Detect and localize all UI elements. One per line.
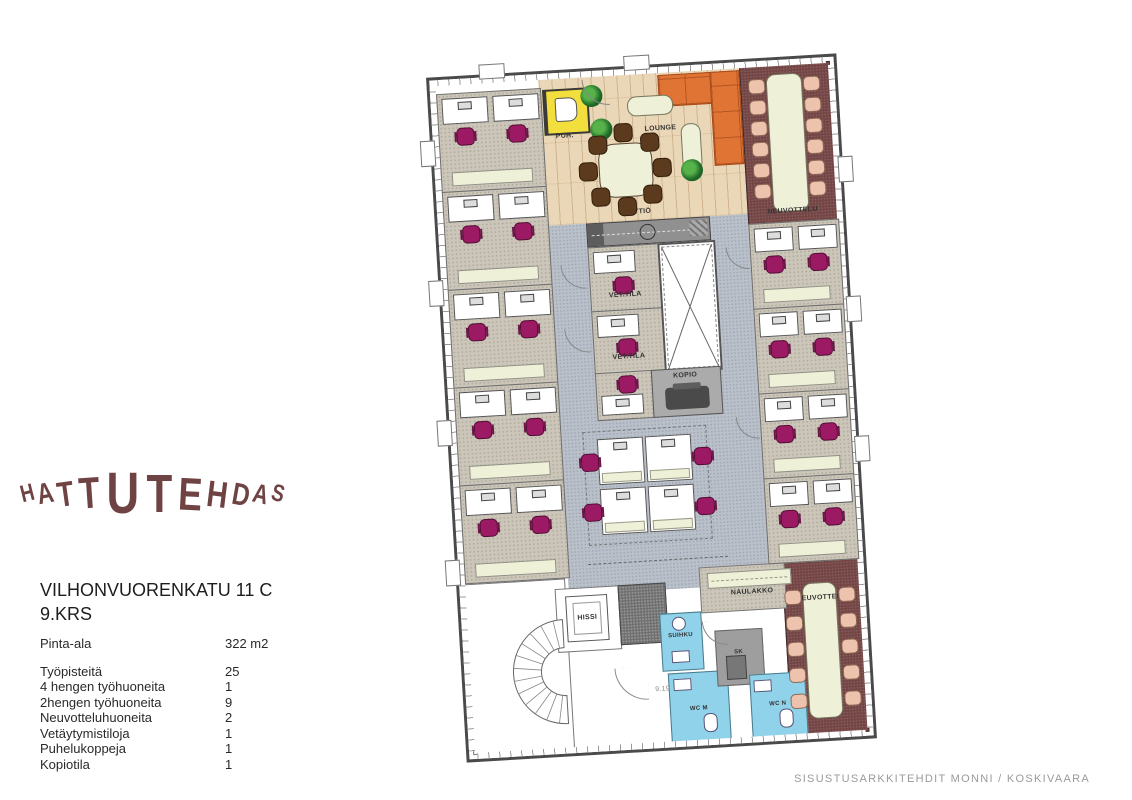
meeting-chair — [838, 586, 856, 602]
logo-letter: T — [55, 476, 76, 513]
address-block: VILHONVUORENKATU 11 C 9.KRS — [40, 578, 272, 626]
meeting-chair — [841, 638, 859, 654]
sideboard — [452, 168, 534, 187]
logo-letter: H — [18, 481, 36, 507]
meeting-chair — [786, 615, 804, 631]
stats-table: Pinta-ala 322 m2 Työpisteitä25 4 hengen … — [40, 636, 320, 772]
office-chair — [479, 518, 498, 537]
lounge-chair — [640, 132, 660, 152]
stat-value: 1 — [225, 679, 232, 695]
floor-line: 9.KRS — [40, 602, 272, 626]
desk — [813, 478, 853, 504]
stat-row: 2hengen työhuoneita9 — [40, 695, 320, 711]
office-chair — [581, 453, 600, 472]
sideboard — [773, 455, 841, 473]
logo-letter: T — [77, 471, 100, 516]
facade-pilaster — [436, 420, 453, 447]
office-room — [448, 284, 559, 389]
desk — [600, 486, 649, 535]
office-chair — [819, 422, 838, 441]
desk-cluster — [597, 434, 697, 535]
desk — [510, 387, 557, 416]
stat-value: 1 — [225, 741, 232, 757]
logo-letter: D — [230, 477, 252, 510]
sideboard — [463, 363, 545, 382]
logo-letter: E — [177, 470, 203, 517]
office-chair — [525, 417, 544, 436]
logo-letter: A — [35, 478, 56, 509]
desk — [515, 484, 562, 513]
shower-sink — [671, 650, 690, 663]
meeting-chair — [750, 121, 768, 137]
stat-label: Pinta-ala — [40, 636, 225, 652]
meeting-chair — [748, 79, 766, 95]
logo-letter: T — [146, 467, 171, 521]
spiral-staircase — [467, 613, 574, 735]
desk — [447, 194, 494, 223]
meeting-chair — [844, 690, 862, 706]
meeting-chair — [808, 159, 826, 175]
lounge-sofa — [709, 70, 745, 166]
stat-value: 1 — [225, 726, 232, 742]
facade-pilaster — [623, 55, 650, 72]
stat-label: Kopiotila — [40, 757, 225, 773]
office-chair — [514, 222, 533, 241]
office-room — [748, 219, 844, 310]
sink — [639, 223, 656, 240]
address-line1: VILHONVUORENKATU 11 C — [40, 578, 272, 602]
copier — [665, 386, 710, 411]
office-room — [753, 303, 849, 394]
office-chair — [780, 509, 799, 528]
hattutehdas-logo: HATTUTEHDAS — [62, 450, 242, 538]
lounge-chair — [578, 162, 598, 182]
meeting-chair — [806, 138, 824, 154]
desk — [498, 191, 545, 220]
office-chair — [696, 496, 715, 515]
lounge-chair — [588, 135, 608, 155]
door-arc — [702, 620, 728, 646]
office-chair — [765, 255, 784, 274]
desk — [764, 396, 804, 422]
stat-value: 9 — [225, 695, 232, 711]
door-arc — [614, 667, 649, 702]
office-chair — [508, 124, 527, 143]
facade-pilaster — [445, 560, 462, 587]
desk — [759, 311, 799, 337]
facade-pilaster — [837, 156, 854, 183]
logo-letter: H — [205, 474, 229, 513]
stat-value: 322 m2 — [225, 636, 268, 652]
facade-pilaster — [420, 140, 437, 167]
stat-area: Pinta-ala 322 m2 — [40, 636, 320, 652]
building-shaft — [657, 240, 723, 373]
lounge-chair — [617, 197, 637, 217]
office-chair — [468, 323, 487, 342]
stat-label: Työpisteitä — [40, 664, 225, 680]
meeting-chair — [784, 589, 802, 605]
office-chair — [824, 507, 843, 526]
logo-letter: U — [106, 465, 138, 523]
retreat-room-1 — [587, 243, 663, 313]
meeting-chair — [751, 142, 769, 158]
facade-pilaster — [428, 280, 445, 307]
meeting-chair — [787, 641, 805, 657]
desk — [645, 434, 694, 483]
office-room — [763, 473, 859, 564]
desk — [504, 289, 551, 318]
desk — [797, 224, 837, 250]
meeting-chair — [805, 117, 823, 133]
lounge-chair — [613, 123, 633, 143]
sink-n — [753, 679, 772, 692]
lounge-chair — [591, 187, 611, 207]
stat-label: 4 hengen työhuoneita — [40, 679, 225, 695]
sideboard — [469, 461, 551, 480]
sideboard — [763, 285, 831, 303]
desk — [769, 481, 809, 507]
facade-pilaster — [846, 295, 863, 322]
meeting-chair — [789, 667, 807, 683]
desk — [648, 484, 697, 533]
stove — [689, 219, 708, 236]
office-room — [758, 388, 854, 479]
cleaning-sink — [726, 655, 747, 680]
sideboard — [778, 540, 846, 558]
office-chair — [473, 421, 492, 440]
meeting-chair — [843, 664, 861, 680]
desk — [459, 390, 506, 419]
desk — [465, 488, 512, 517]
stat-row: Neuvotteluhuoneita2 — [40, 710, 320, 726]
sideboard — [457, 265, 539, 284]
meeting-chair — [753, 163, 771, 179]
office-chair — [520, 320, 539, 339]
stat-label: Neuvotteluhuoneita — [40, 710, 225, 726]
stat-value: 25 — [225, 664, 239, 680]
meeting-chair — [754, 184, 772, 200]
office-room — [453, 381, 564, 486]
lounge-chair — [643, 184, 663, 204]
retreat-room-2 — [591, 307, 667, 375]
office-chair — [693, 447, 712, 466]
logo-letter: S — [269, 481, 287, 507]
toilet-n — [779, 708, 794, 728]
meeting-chair — [809, 180, 827, 196]
office-room — [436, 88, 547, 193]
stat-row: Työpisteitä25 — [40, 664, 320, 680]
office-chair — [775, 425, 794, 444]
sideboard — [475, 559, 557, 578]
desk — [597, 437, 646, 486]
architect-credit: SISUSTUSARKKITEHDIT MONNI / KOSKIVAARA — [794, 773, 1090, 785]
desk — [754, 226, 794, 252]
office-chair — [814, 337, 833, 356]
office-chair — [456, 127, 475, 146]
coffee-table — [627, 94, 674, 117]
stat-label: Vetäytymistiloja — [40, 726, 225, 742]
lounge-chair — [652, 157, 672, 177]
stat-label: 2hengen työhuoneita — [40, 695, 225, 711]
stat-value: 1 — [225, 757, 232, 773]
sideboard — [768, 370, 836, 388]
desk — [441, 96, 488, 125]
meeting-chair — [840, 612, 858, 628]
stat-row: Kopiotila1 — [40, 757, 320, 773]
stat-row: 4 hengen työhuoneita1 — [40, 679, 320, 695]
office-chair — [584, 503, 603, 522]
meeting-chair — [804, 96, 822, 112]
stat-row: Puhelukoppeja1 — [40, 741, 320, 757]
desk — [803, 309, 843, 335]
stat-value: 2 — [225, 710, 232, 726]
floor-plan: PUH. LOUNGE KEITTIÖ NEUVOTTELU VET.TILA … — [426, 53, 877, 762]
desk — [808, 393, 848, 419]
facade-pilaster — [478, 63, 505, 80]
meeting-chair — [803, 75, 821, 91]
office-chair — [770, 340, 789, 359]
meeting-chair — [790, 693, 808, 709]
office-room — [459, 479, 570, 584]
office-room — [442, 186, 553, 291]
retreat-nook — [595, 370, 656, 421]
toilet-m — [703, 713, 718, 733]
meeting-chair — [749, 100, 767, 116]
office-chair — [462, 225, 481, 244]
stat-label: Puhelukoppeja — [40, 741, 225, 757]
office-chair — [531, 515, 550, 534]
stat-row: Vetäytymistiloja1 — [40, 726, 320, 742]
facade-pilaster — [854, 435, 871, 462]
office-chair — [809, 252, 828, 271]
desk — [453, 292, 500, 321]
desk — [492, 93, 539, 122]
